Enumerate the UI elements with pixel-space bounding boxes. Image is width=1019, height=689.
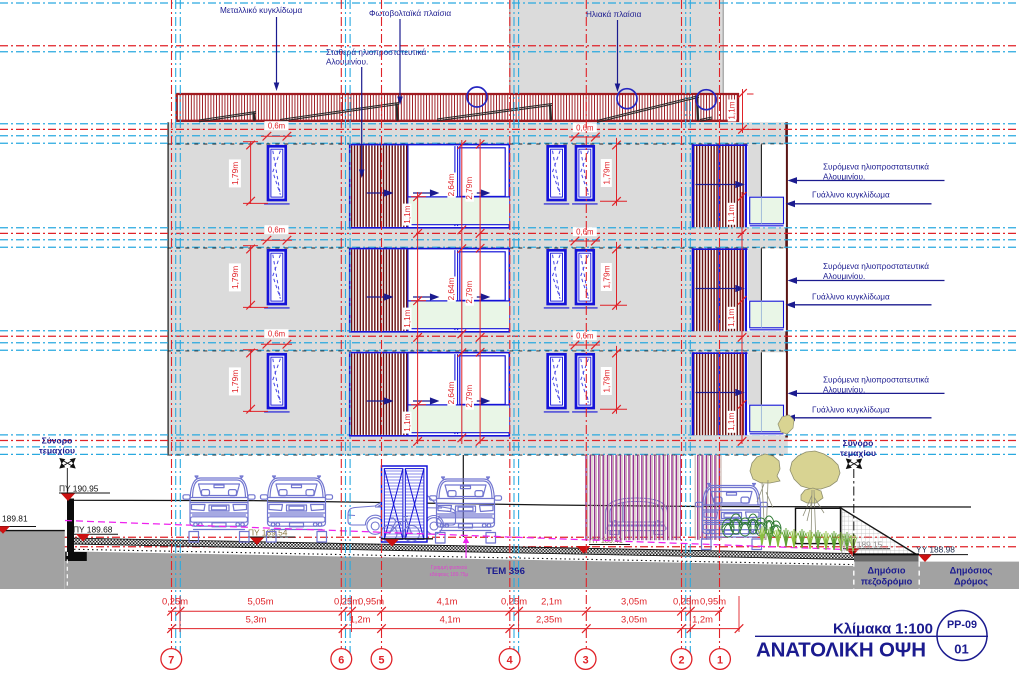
svg-text:1,79m: 1,79m xyxy=(601,265,611,288)
svg-text:2,79m: 2,79m xyxy=(465,177,474,200)
svg-text:Δρόμος: Δρόμος xyxy=(954,577,988,587)
svg-text:1,1m: 1,1m xyxy=(403,309,412,327)
svg-text:0,6m: 0,6m xyxy=(576,228,593,237)
svg-text:Αλουμινίου.: Αλουμινίου. xyxy=(326,58,368,67)
svg-text:Κλίμακα 1:100: Κλίμακα 1:100 xyxy=(833,621,933,638)
svg-text:εδάφους 189.75μ: εδάφους 189.75μ xyxy=(430,571,469,578)
svg-text:2,35m: 2,35m xyxy=(536,613,562,624)
svg-text:2,79m: 2,79m xyxy=(465,385,474,408)
svg-text:ΑΝΑΤΟΛΙΚΗ ΟΨΗ: ΑΝΑΤΟΛΙΚΗ ΟΨΗ xyxy=(756,639,926,662)
svg-text:0,6m: 0,6m xyxy=(268,122,285,131)
svg-text:ΠΥ 189.68: ΠΥ 189.68 xyxy=(73,525,113,535)
svg-text:Γυάλλινο κυγκλίδωμα: Γυάλλινο κυγκλίδωμα xyxy=(812,405,890,414)
svg-text:1,1m: 1,1m xyxy=(403,413,412,431)
svg-text:Συρόμενα ηλιοπροστατευτικά: Συρόμενα ηλιοπροστατευτικά xyxy=(823,375,929,384)
svg-text:2,64m: 2,64m xyxy=(447,381,456,404)
svg-text:6: 6 xyxy=(338,654,344,666)
svg-text:2,79m: 2,79m xyxy=(465,281,474,304)
svg-text:3: 3 xyxy=(583,654,589,666)
svg-text:1,79m: 1,79m xyxy=(230,266,240,289)
svg-text:3,05m: 3,05m xyxy=(621,596,647,607)
svg-text:1,79m: 1,79m xyxy=(230,370,240,393)
svg-text:5: 5 xyxy=(378,654,384,666)
svg-text:1,2m: 1,2m xyxy=(350,613,371,624)
svg-text:πεζοδρόμιο: πεζοδρόμιο xyxy=(861,577,913,587)
svg-text:Σύνορο: Σύνορο xyxy=(843,438,874,448)
svg-text:2,64m: 2,64m xyxy=(447,277,456,300)
svg-text:01: 01 xyxy=(954,642,968,657)
svg-text:1,79m: 1,79m xyxy=(230,162,240,185)
svg-text:1,79m: 1,79m xyxy=(601,161,611,184)
svg-text:Συρόμενα ηλιοπροστατευτικά: Συρόμενα ηλιοπροστατευτικά xyxy=(823,163,929,172)
svg-text:0,6m: 0,6m xyxy=(268,226,285,235)
svg-text:0,95m: 0,95m xyxy=(358,596,384,607)
svg-text:1: 1 xyxy=(717,654,723,666)
svg-text:4,1m: 4,1m xyxy=(440,613,461,624)
svg-text:1,2m: 1,2m xyxy=(692,613,713,624)
svg-text:Μεταλλικό κυγκλίδωμα: Μεταλλικό κυγκλίδωμα xyxy=(220,6,302,15)
svg-text:0,25m: 0,25m xyxy=(501,596,527,607)
svg-text:4: 4 xyxy=(507,654,513,666)
svg-text:0,25m: 0,25m xyxy=(162,596,188,607)
svg-text:Αλουμινίου.: Αλουμινίου. xyxy=(823,272,865,281)
svg-text:Γυάλλινο κυγκλίδωμα: Γυάλλινο κυγκλίδωμα xyxy=(812,191,890,200)
svg-text:2: 2 xyxy=(678,654,684,666)
svg-text:3,05m: 3,05m xyxy=(621,613,647,624)
svg-text:Συρόμενα ηλιοπροστατευτικά: Συρόμενα ηλιοπροστατευτικά xyxy=(823,262,929,271)
svg-text:ΠΥ 190.95: ΠΥ 190.95 xyxy=(59,484,99,494)
svg-text:0,6m: 0,6m xyxy=(576,332,593,341)
svg-text:1,1m: 1,1m xyxy=(728,101,737,119)
svg-text:5,05m: 5,05m xyxy=(247,596,273,607)
svg-text:5,3m: 5,3m xyxy=(246,613,267,624)
svg-text:0,6m: 0,6m xyxy=(268,330,285,339)
svg-text:2,64m: 2,64m xyxy=(447,173,456,196)
svg-text:1,1m: 1,1m xyxy=(727,413,736,431)
svg-text:1,1m: 1,1m xyxy=(727,205,736,223)
svg-text:Δημόσιο: Δημόσιο xyxy=(868,566,906,576)
svg-text:Δημόσιος: Δημόσιος xyxy=(950,566,993,576)
svg-text:1,79m: 1,79m xyxy=(601,369,611,392)
svg-text:Σύνορο: Σύνορο xyxy=(42,436,73,446)
svg-text:2,1m: 2,1m xyxy=(541,596,562,607)
svg-text:0,25m: 0,25m xyxy=(334,596,360,607)
svg-text:ΥΥ 188.98: ΥΥ 188.98 xyxy=(916,545,955,555)
svg-text:τεμαχίου: τεμαχίου xyxy=(39,446,75,456)
svg-text:Γυάλλινο κυγκλίδωμα: Γυάλλινο κυγκλίδωμα xyxy=(812,293,890,302)
svg-text:PP-09: PP-09 xyxy=(947,619,977,631)
svg-text:7: 7 xyxy=(168,654,174,666)
svg-text:1,1m: 1,1m xyxy=(727,309,736,327)
svg-text:4,1m: 4,1m xyxy=(437,596,458,607)
svg-text:Γραμμή φυσικού: Γραμμή φυσικού xyxy=(431,564,468,571)
svg-text:0,95m: 0,95m xyxy=(700,596,726,607)
svg-text:189.81: 189.81 xyxy=(2,514,28,524)
svg-text:τεμαχίου: τεμαχίου xyxy=(840,448,876,458)
svg-text:0,25m: 0,25m xyxy=(673,596,699,607)
svg-text:0,6m: 0,6m xyxy=(576,124,593,133)
svg-text:Ηλιακά πλαίσια: Ηλιακά πλαίσια xyxy=(586,10,642,19)
svg-text:1,1m: 1,1m xyxy=(403,205,412,223)
